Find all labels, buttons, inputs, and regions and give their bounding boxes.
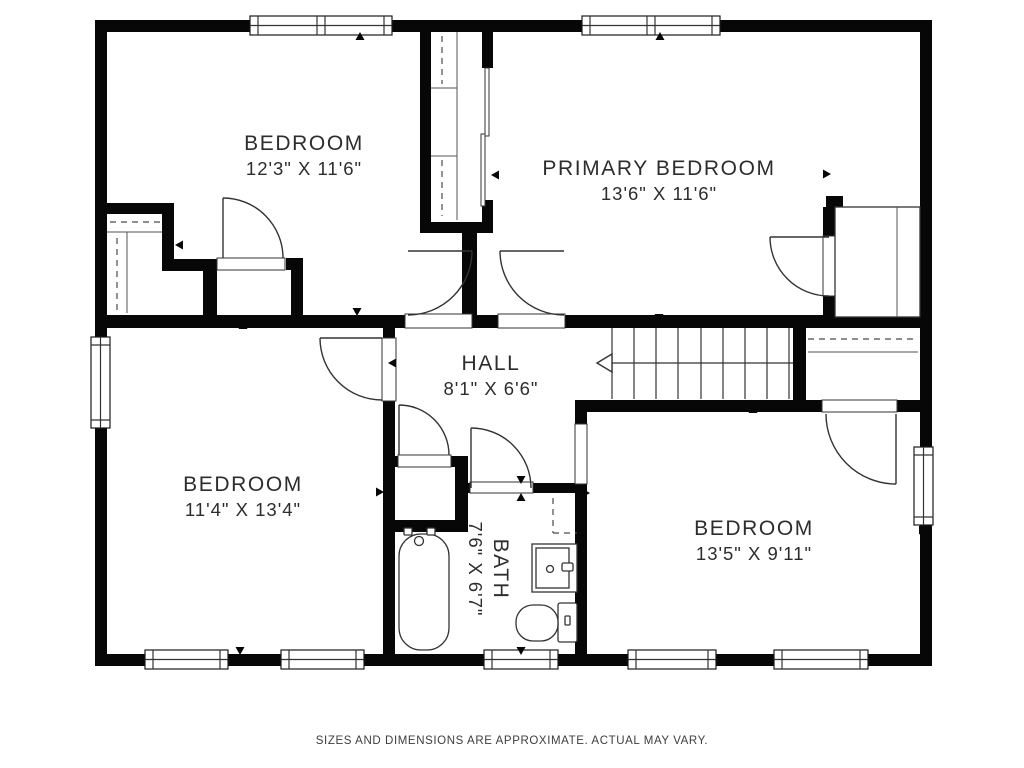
door-swing (223, 198, 283, 258)
room-dimensions: 13'5" X 9'11" (694, 541, 814, 566)
door-swing (320, 338, 382, 400)
walls (95, 20, 932, 666)
room-name: BEDROOM (183, 472, 303, 497)
sink-vanity (532, 544, 577, 592)
room-label-bath: BATH 7'6" X 6'7" (463, 522, 513, 617)
door-swing (399, 405, 449, 455)
door-swing (826, 414, 896, 484)
room-name: PRIMARY BEDROOM (542, 156, 775, 181)
room-dimensions: 7'6" X 6'7" (463, 522, 488, 617)
primary-closet (835, 207, 920, 317)
staircase-up-arrow (597, 354, 612, 372)
door-swing (770, 237, 829, 296)
window (91, 337, 110, 428)
room-dimensions: 11'4" X 13'4" (183, 497, 303, 522)
closet-rod-dashed-line (110, 36, 918, 339)
room-label-bedroom-bottom-left: BEDROOM 11'4" X 13'4" (183, 472, 303, 522)
room-name: BEDROOM (694, 516, 814, 541)
window (250, 16, 392, 35)
room-name: BATH (488, 522, 513, 617)
window (145, 650, 228, 669)
room-label-hall: HALL 8'1" X 6'6" (444, 351, 539, 401)
room-dimensions: 12'3" X 11'6" (244, 156, 364, 181)
attic-access-dashed (553, 498, 577, 533)
room-name: HALL (444, 351, 539, 376)
room-label-bedroom-top-left: BEDROOM 12'3" X 11'6" (244, 131, 364, 181)
staircase (597, 328, 793, 399)
door-swing (500, 251, 564, 315)
window (628, 650, 716, 669)
room-label-primary-bedroom: PRIMARY BEDROOM 13'6" X 11'6" (542, 156, 775, 206)
window (774, 650, 868, 669)
room-label-bedroom-bottom-right: BEDROOM 13'5" X 9'11" (694, 516, 814, 566)
bathtub (399, 528, 449, 650)
floor-plan: BEDROOM 12'3" X 11'6" PRIMARY BEDROOM 13… (0, 0, 1024, 768)
window (582, 16, 720, 35)
room-dimensions: 8'1" X 6'6" (444, 376, 539, 401)
window (281, 650, 364, 669)
window (914, 447, 933, 525)
room-name: BEDROOM (244, 131, 364, 156)
disclaimer-caption: SIZES AND DIMENSIONS ARE APPROXIMATE. AC… (316, 735, 708, 747)
toilet (516, 603, 577, 642)
closet-details (107, 32, 920, 533)
room-dimensions: 13'6" X 11'6" (542, 181, 775, 206)
sliding-closet-door (481, 68, 489, 206)
